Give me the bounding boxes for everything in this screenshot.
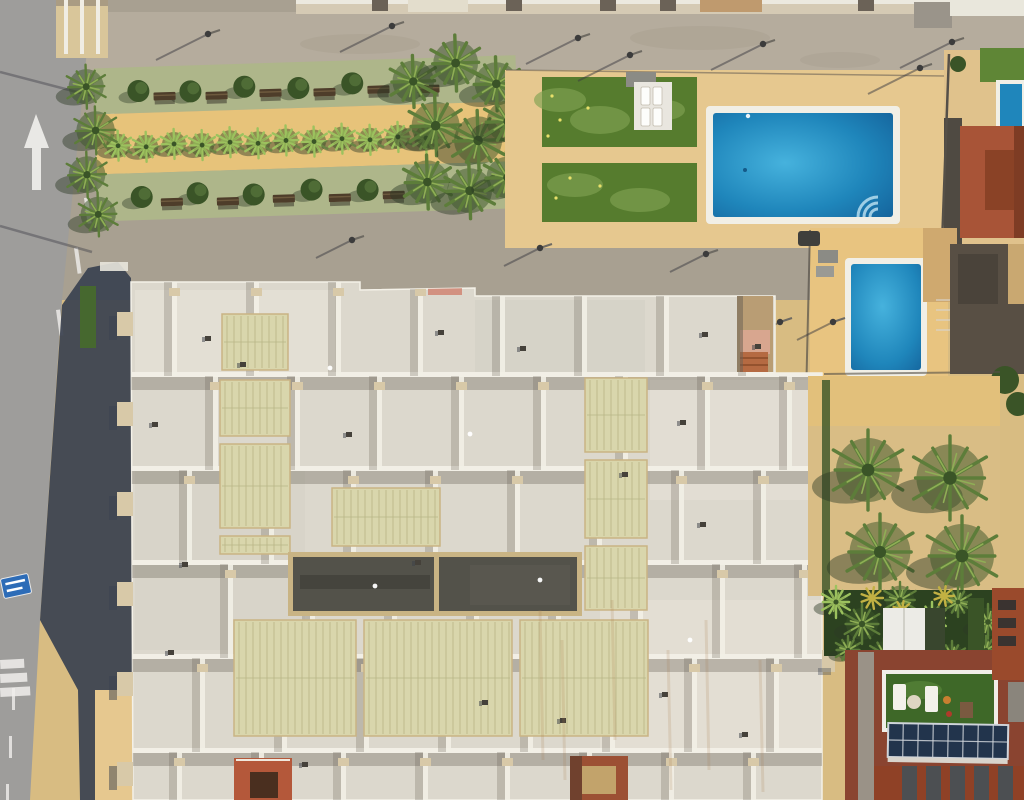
potted-plant <box>943 696 951 704</box>
parapet-cap <box>374 382 385 390</box>
vent-shadow <box>739 733 742 738</box>
parapet-wall <box>774 658 779 752</box>
vent-shadow <box>752 345 755 350</box>
sun-lounger <box>653 108 662 126</box>
park-bench <box>329 193 351 202</box>
bench-shadow <box>218 205 238 210</box>
central-lightwell <box>288 552 582 616</box>
main-swimming-pool <box>706 106 900 224</box>
terracotta-inner <box>985 150 1015 210</box>
roof-vent <box>182 562 188 567</box>
lawn-area <box>534 72 697 222</box>
window <box>998 636 1016 646</box>
vent-shadow <box>202 337 205 342</box>
outbuilding-shade <box>958 254 998 304</box>
park-bench <box>259 89 281 98</box>
red-structure-left <box>234 758 292 800</box>
vent-shadow <box>557 719 560 724</box>
roof-vent <box>152 422 158 427</box>
hedge-strip <box>80 286 96 348</box>
parapet-shadow <box>671 470 679 564</box>
parapet-wall <box>336 282 341 376</box>
parapet-wall <box>515 470 520 564</box>
parapet-cap <box>197 664 208 672</box>
roof-vent <box>205 336 211 341</box>
parapet-cap <box>333 288 344 296</box>
bench-slat <box>217 200 239 201</box>
parapet-cap <box>338 758 349 766</box>
tab-shadow <box>109 406 117 430</box>
park-bench <box>313 88 335 97</box>
pool-skimmer <box>746 114 750 118</box>
vent-shadow <box>517 347 520 352</box>
stairs-block <box>914 2 952 28</box>
vent-shadow <box>479 701 482 706</box>
parapet-cap <box>512 476 523 484</box>
lawn-patch <box>534 88 586 112</box>
parapet-shadow <box>533 376 541 470</box>
stain <box>300 34 420 54</box>
parapet-wall <box>131 748 822 753</box>
neighbour-grass <box>980 48 1024 82</box>
parapet-cap <box>169 288 180 296</box>
bench-slat <box>329 196 351 197</box>
street-lamp <box>205 31 211 37</box>
parapet-cap <box>771 664 782 672</box>
crosswalk-stripe <box>0 659 24 669</box>
roof-vent <box>622 472 628 477</box>
roof-vent <box>415 560 421 565</box>
palm-courtyard <box>808 372 1000 596</box>
lawn-path <box>542 147 697 163</box>
vent-shadow <box>699 333 702 338</box>
roof-gap <box>600 0 616 11</box>
parapet-wall <box>787 376 792 470</box>
parapet-wall <box>692 658 697 752</box>
carport-roofs <box>874 766 1024 800</box>
lightwell-texture <box>300 575 430 589</box>
vent-shadow <box>619 473 622 478</box>
courtyard-shade <box>737 296 743 372</box>
roof-vent <box>680 420 686 425</box>
grey-roof <box>1008 682 1024 722</box>
vent-shadow <box>343 433 346 438</box>
carport-roof <box>902 766 917 800</box>
stain <box>800 52 880 68</box>
vent-shadow <box>149 423 152 428</box>
palm-crown <box>833 599 838 604</box>
bench-slat <box>259 92 281 93</box>
vent-shadow <box>659 693 662 698</box>
parapet-cap <box>415 288 426 296</box>
bench-shadow <box>162 206 182 211</box>
side-walk-strip <box>858 652 874 800</box>
palm-crown <box>874 546 886 558</box>
parapet-cap <box>292 382 303 390</box>
roof-fixture <box>688 638 693 643</box>
red-structure-right <box>570 756 628 800</box>
dandelion <box>558 118 561 121</box>
bench-shadow <box>261 97 281 102</box>
stain <box>630 26 770 50</box>
street-lamp <box>537 245 543 251</box>
structure-inner <box>582 766 616 794</box>
dandelion <box>598 184 601 187</box>
aerial-photo: Top-down aerial drone photograph of a Me… <box>0 0 1024 800</box>
parapet-shadow <box>220 564 228 658</box>
parapet-shadow <box>179 470 187 564</box>
lawn-patch <box>610 188 670 212</box>
window <box>998 618 1016 628</box>
roof-vent <box>520 346 526 351</box>
parapet-cap <box>174 758 185 766</box>
tan-roof <box>700 0 762 12</box>
vent-shadow <box>435 331 438 336</box>
bench-slat <box>273 197 295 198</box>
dandelion <box>586 106 589 109</box>
pergola-dark-roof <box>925 608 945 650</box>
parapet-shadow <box>794 564 802 658</box>
parapet-cap <box>251 288 262 296</box>
roof-vent <box>302 762 308 767</box>
park-bench <box>161 198 183 207</box>
vent-shadow <box>165 651 168 656</box>
roof-vent <box>662 692 668 697</box>
second-pool-water <box>851 264 921 370</box>
bench-slat <box>313 91 335 92</box>
roof-gap <box>372 0 388 11</box>
facade-post <box>96 0 100 54</box>
parapet-tab <box>117 762 133 786</box>
roof-slab <box>408 0 468 12</box>
parapet-cap <box>748 758 759 766</box>
parapet-shadow <box>410 282 418 376</box>
parapet-tab <box>117 402 133 426</box>
parapet-cap <box>784 382 795 390</box>
dandelion <box>546 134 549 137</box>
red-item <box>946 711 952 717</box>
roof-vent <box>482 700 488 705</box>
parapet-shadow <box>712 564 720 658</box>
parapet-shadow <box>369 376 377 470</box>
street-lamp <box>760 41 766 47</box>
structure-shade <box>570 756 582 800</box>
hedge-column <box>968 598 984 654</box>
facade-post <box>64 0 68 54</box>
street-lamp <box>777 319 783 325</box>
tab-shadow <box>109 496 117 520</box>
street-lamp <box>703 251 709 257</box>
roof-gap <box>660 0 676 11</box>
crosswalk-stripe <box>0 686 30 697</box>
tan-strip <box>1008 244 1024 304</box>
equipment-box <box>816 266 834 277</box>
bench-shadow <box>315 96 335 101</box>
palm-crown <box>943 471 956 484</box>
pool-drain <box>743 168 747 172</box>
parapet-tab <box>117 582 133 606</box>
roof-fixture <box>468 432 473 437</box>
solar-array <box>888 723 1009 764</box>
red-structure-opening <box>250 772 278 798</box>
roof-vent <box>755 344 761 349</box>
park-bench <box>273 194 295 203</box>
parapet-shadow <box>574 282 582 376</box>
tab-shadow <box>109 766 117 790</box>
dandelion <box>568 176 571 179</box>
parapet-cap <box>758 476 769 484</box>
street-lamp <box>949 39 955 45</box>
parapet-cap <box>420 758 431 766</box>
parapet-shadow <box>192 658 200 752</box>
parapet-wall <box>228 564 233 658</box>
bench-shadow <box>207 99 227 104</box>
aerial-scene-canvas <box>0 0 1024 800</box>
parapet-cap <box>689 664 700 672</box>
vent-shadow <box>677 421 680 426</box>
lawn-patch <box>547 173 603 197</box>
courtyard-pink <box>740 330 770 354</box>
wooden-chair <box>960 702 973 718</box>
sun-lounger <box>893 684 906 710</box>
parapet-shadow <box>779 376 787 470</box>
parapet-cap <box>348 476 359 484</box>
palm-crown <box>985 619 991 625</box>
sun-lounger <box>653 87 662 105</box>
parapet-cap <box>538 382 549 390</box>
carport-roof <box>998 766 1013 800</box>
roof-vent <box>702 332 708 337</box>
dandelion <box>550 94 553 97</box>
roof-vent <box>240 362 246 367</box>
roof-vent <box>168 650 174 655</box>
palm-crown <box>956 600 961 605</box>
bench-slat <box>161 201 183 202</box>
vent-shadow <box>179 563 182 568</box>
roof-vent <box>742 732 748 737</box>
parapet-shadow <box>492 282 500 376</box>
parapet-shadow <box>328 282 336 376</box>
window <box>998 600 1016 610</box>
palm-crown <box>862 464 875 477</box>
parapet-wall <box>500 282 505 376</box>
palm-crown <box>956 550 969 563</box>
parapet-wall <box>582 282 587 376</box>
parapet-cap <box>676 476 687 484</box>
parapet-wall <box>200 658 205 752</box>
park-bench <box>205 91 227 100</box>
parapet-cap <box>184 476 195 484</box>
carport-roof <box>950 766 965 800</box>
parapet-shadow <box>753 470 761 564</box>
parapet-cap <box>430 476 441 484</box>
lightwell-seam <box>434 554 439 614</box>
parapet-cap <box>502 758 513 766</box>
park-bench <box>153 92 175 101</box>
roof-vent <box>346 432 352 437</box>
bench-shadow <box>330 201 350 206</box>
roof-gap <box>858 0 874 11</box>
sun-lounger <box>641 108 650 126</box>
lane-dash <box>9 736 12 758</box>
parapet-shadow <box>356 658 364 752</box>
roof-fixture <box>328 366 333 371</box>
carport-roof <box>926 766 941 800</box>
parapet-wall <box>459 376 464 470</box>
palm-crown <box>859 621 865 627</box>
roof-fixture <box>373 584 378 589</box>
parapet-wall <box>802 564 807 658</box>
street-lamp <box>627 52 633 58</box>
tab-shadow <box>818 668 831 675</box>
vent-shadow <box>412 561 415 566</box>
facade-post <box>80 0 84 54</box>
crosswalk-stripe <box>0 673 27 683</box>
equipment-box <box>818 250 838 263</box>
carport-roof <box>974 766 989 800</box>
parapet-shadow <box>451 376 459 470</box>
roof-vent <box>438 330 444 335</box>
white-slab <box>950 0 1024 16</box>
parapet-shadow <box>507 470 515 564</box>
tab-shadow <box>109 316 117 340</box>
street-lamp <box>349 237 355 243</box>
parapet-wall <box>131 372 822 377</box>
parapet-shadow <box>697 376 705 470</box>
parapet-shadow <box>684 658 692 752</box>
tab-shadow <box>109 586 117 610</box>
parapet-wall <box>720 564 725 658</box>
roof-fixture <box>538 578 543 583</box>
parapet-wall <box>761 470 766 564</box>
white-fence-bit <box>100 262 128 271</box>
parapet-wall <box>664 282 669 376</box>
parked-vehicle <box>798 231 820 246</box>
parapet-shadow <box>766 658 774 752</box>
parapet-wall <box>295 376 300 470</box>
tab-shadow <box>109 676 117 700</box>
parapet-wall <box>172 282 177 376</box>
terracotta-edge <box>1014 126 1024 238</box>
stair-courtyard <box>737 296 773 372</box>
parapet-shadow <box>656 282 664 376</box>
vent-shadow <box>237 363 240 368</box>
shrub <box>950 56 966 72</box>
parapet-cap <box>717 570 728 578</box>
courtyard-ochre-band <box>808 376 1000 426</box>
parapet-cap <box>702 382 713 390</box>
bench-shadow <box>274 202 294 207</box>
dandelion <box>554 196 557 199</box>
lawn-patch <box>570 106 630 134</box>
sun-lounger <box>925 686 938 712</box>
street-lamp <box>575 35 581 41</box>
parapet-tab <box>117 492 133 516</box>
round-table <box>907 695 921 709</box>
street-lamp <box>917 65 923 71</box>
parapet-wall <box>541 376 546 470</box>
vent-shadow <box>697 523 700 528</box>
parapet-cap <box>456 382 467 390</box>
parapet-shadow <box>164 282 172 376</box>
park-bench <box>217 197 239 206</box>
parapet-tab <box>117 672 133 696</box>
parapet-wall <box>377 376 382 470</box>
parapet-wall <box>213 376 218 470</box>
parapet-wall <box>418 282 423 376</box>
courtyard-stairs <box>740 352 768 372</box>
parapet-wall <box>187 470 192 564</box>
parapet-wall <box>679 470 684 564</box>
lane-dash <box>6 784 9 800</box>
bench-slat <box>206 94 228 95</box>
street-lamp <box>830 319 836 325</box>
parapet-tab <box>117 312 133 336</box>
bench-shadow <box>155 100 175 105</box>
parapet-cap <box>225 570 236 578</box>
street-lamp <box>389 23 395 29</box>
roof-vent <box>700 522 706 527</box>
parapet-wall <box>705 376 710 470</box>
lightwell-texture <box>470 565 570 605</box>
vent-shadow <box>299 763 302 768</box>
parapet-shadow <box>205 376 213 470</box>
sun-lounger <box>641 87 650 105</box>
bench-slat <box>154 95 176 96</box>
roof-gap <box>506 0 522 11</box>
